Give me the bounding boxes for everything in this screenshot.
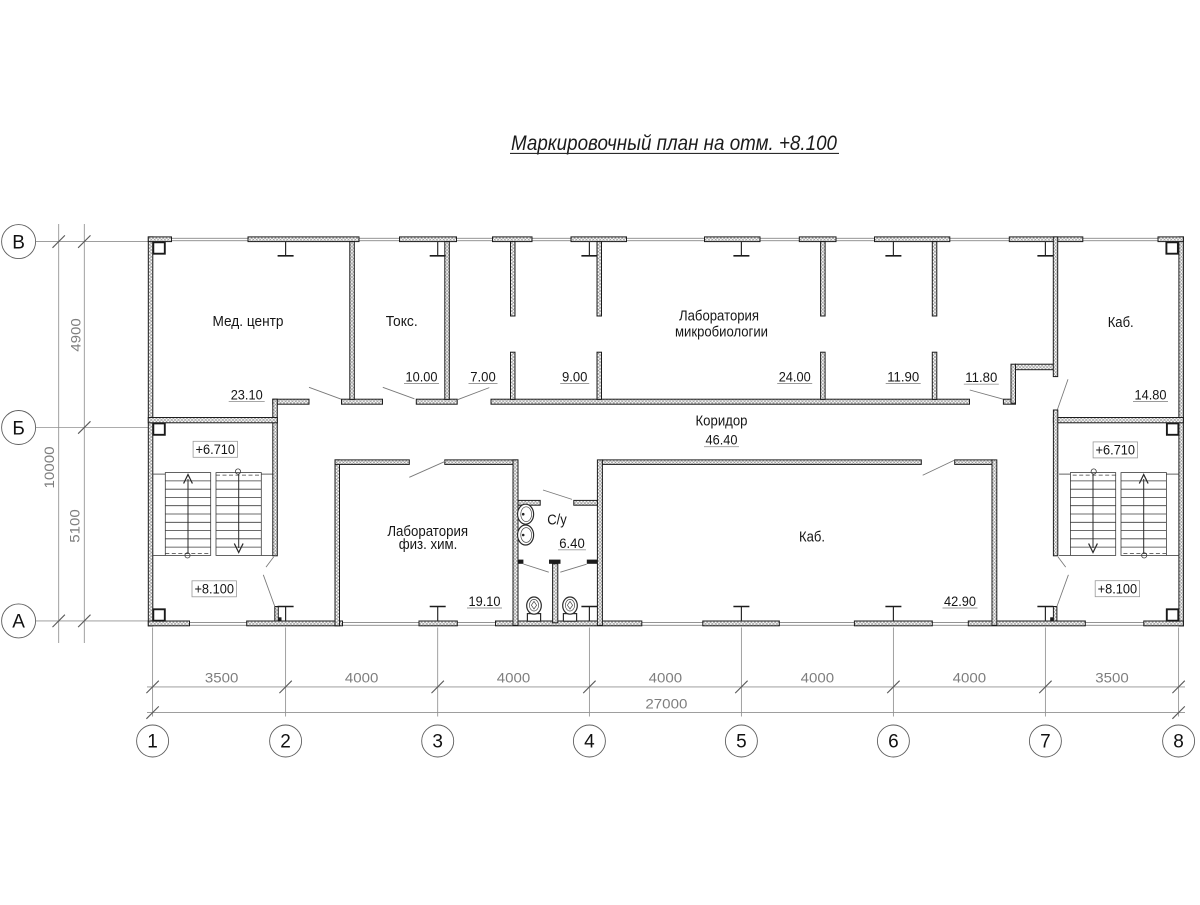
svg-text:27000: 27000 [645, 696, 687, 711]
svg-text:8: 8 [1173, 732, 1184, 753]
svg-text:4000: 4000 [953, 670, 987, 685]
svg-text:5100: 5100 [67, 509, 82, 543]
svg-text:Лаборатория: Лаборатория [679, 308, 759, 324]
svg-text:А: А [12, 612, 25, 633]
svg-text:+8.100: +8.100 [1098, 581, 1138, 597]
svg-text:3500: 3500 [1095, 670, 1129, 685]
svg-text:С/у: С/у [547, 513, 567, 529]
svg-text:Мед. центр: Мед. центр [213, 314, 284, 330]
svg-text:Токс.: Токс. [386, 314, 418, 330]
svg-text:+6.710: +6.710 [1096, 443, 1136, 459]
svg-text:5: 5 [736, 732, 747, 753]
svg-text:микробиологии: микробиологии [675, 325, 768, 341]
svg-text:+6.710: +6.710 [196, 442, 236, 458]
svg-text:+8.100: +8.100 [194, 582, 234, 598]
svg-text:4000: 4000 [497, 670, 531, 685]
svg-text:7: 7 [1040, 732, 1051, 753]
svg-text:3: 3 [432, 732, 443, 753]
svg-text:6: 6 [888, 732, 899, 753]
svg-text:4000: 4000 [649, 670, 683, 685]
svg-text:Каб.: Каб. [799, 529, 825, 545]
svg-text:4: 4 [584, 732, 595, 753]
svg-text:4000: 4000 [801, 670, 835, 685]
svg-text:Коридор: Коридор [696, 414, 748, 430]
svg-text:Б: Б [12, 418, 24, 439]
svg-text:физ. хим.: физ. хим. [399, 537, 458, 553]
svg-text:В: В [12, 232, 25, 253]
svg-text:4000: 4000 [345, 670, 379, 685]
svg-text:Каб.: Каб. [1108, 315, 1134, 331]
svg-text:10000: 10000 [42, 447, 57, 489]
svg-text:4900: 4900 [68, 318, 83, 352]
svg-text:Маркировочный план на отм. +8.: Маркировочный план на отм. +8.100 [511, 132, 837, 155]
svg-text:1: 1 [147, 732, 158, 753]
svg-text:3500: 3500 [205, 670, 239, 685]
svg-text:2: 2 [280, 732, 291, 753]
